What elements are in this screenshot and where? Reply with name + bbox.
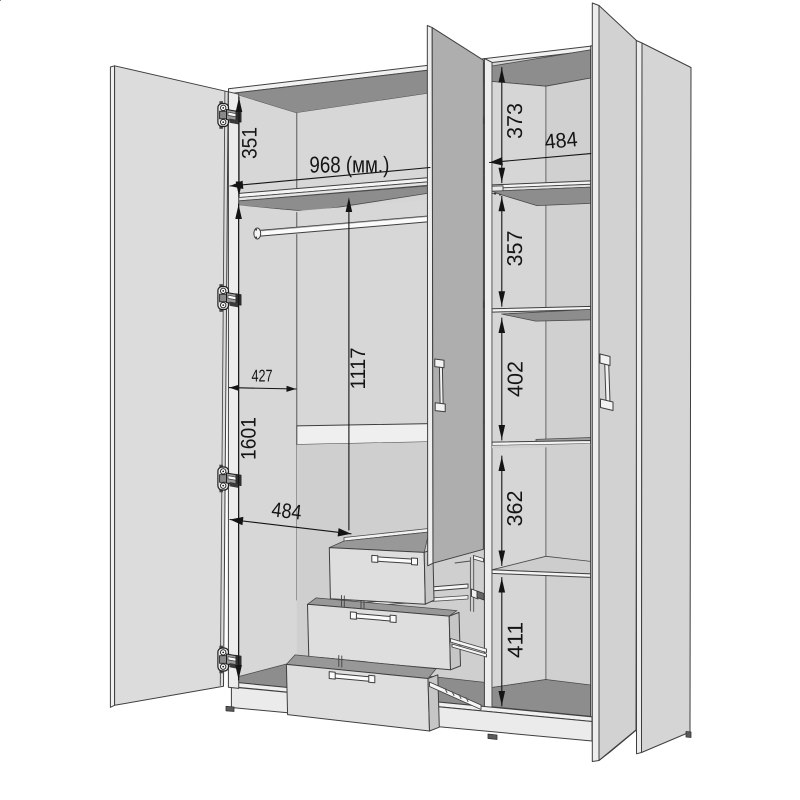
svg-text:411: 411: [504, 622, 528, 658]
svg-text:484: 484: [544, 128, 579, 154]
svg-text:968 (мм.): 968 (мм.): [309, 152, 389, 178]
svg-text:1601: 1601: [238, 417, 261, 460]
svg-text:1117: 1117: [347, 348, 370, 390]
svg-text:362: 362: [503, 491, 527, 527]
svg-text:402: 402: [504, 361, 528, 397]
svg-text:427: 427: [252, 367, 273, 386]
svg-text:357: 357: [503, 231, 527, 267]
svg-text:351: 351: [239, 127, 262, 159]
svg-text:484: 484: [270, 498, 303, 524]
svg-text:373: 373: [503, 103, 527, 139]
